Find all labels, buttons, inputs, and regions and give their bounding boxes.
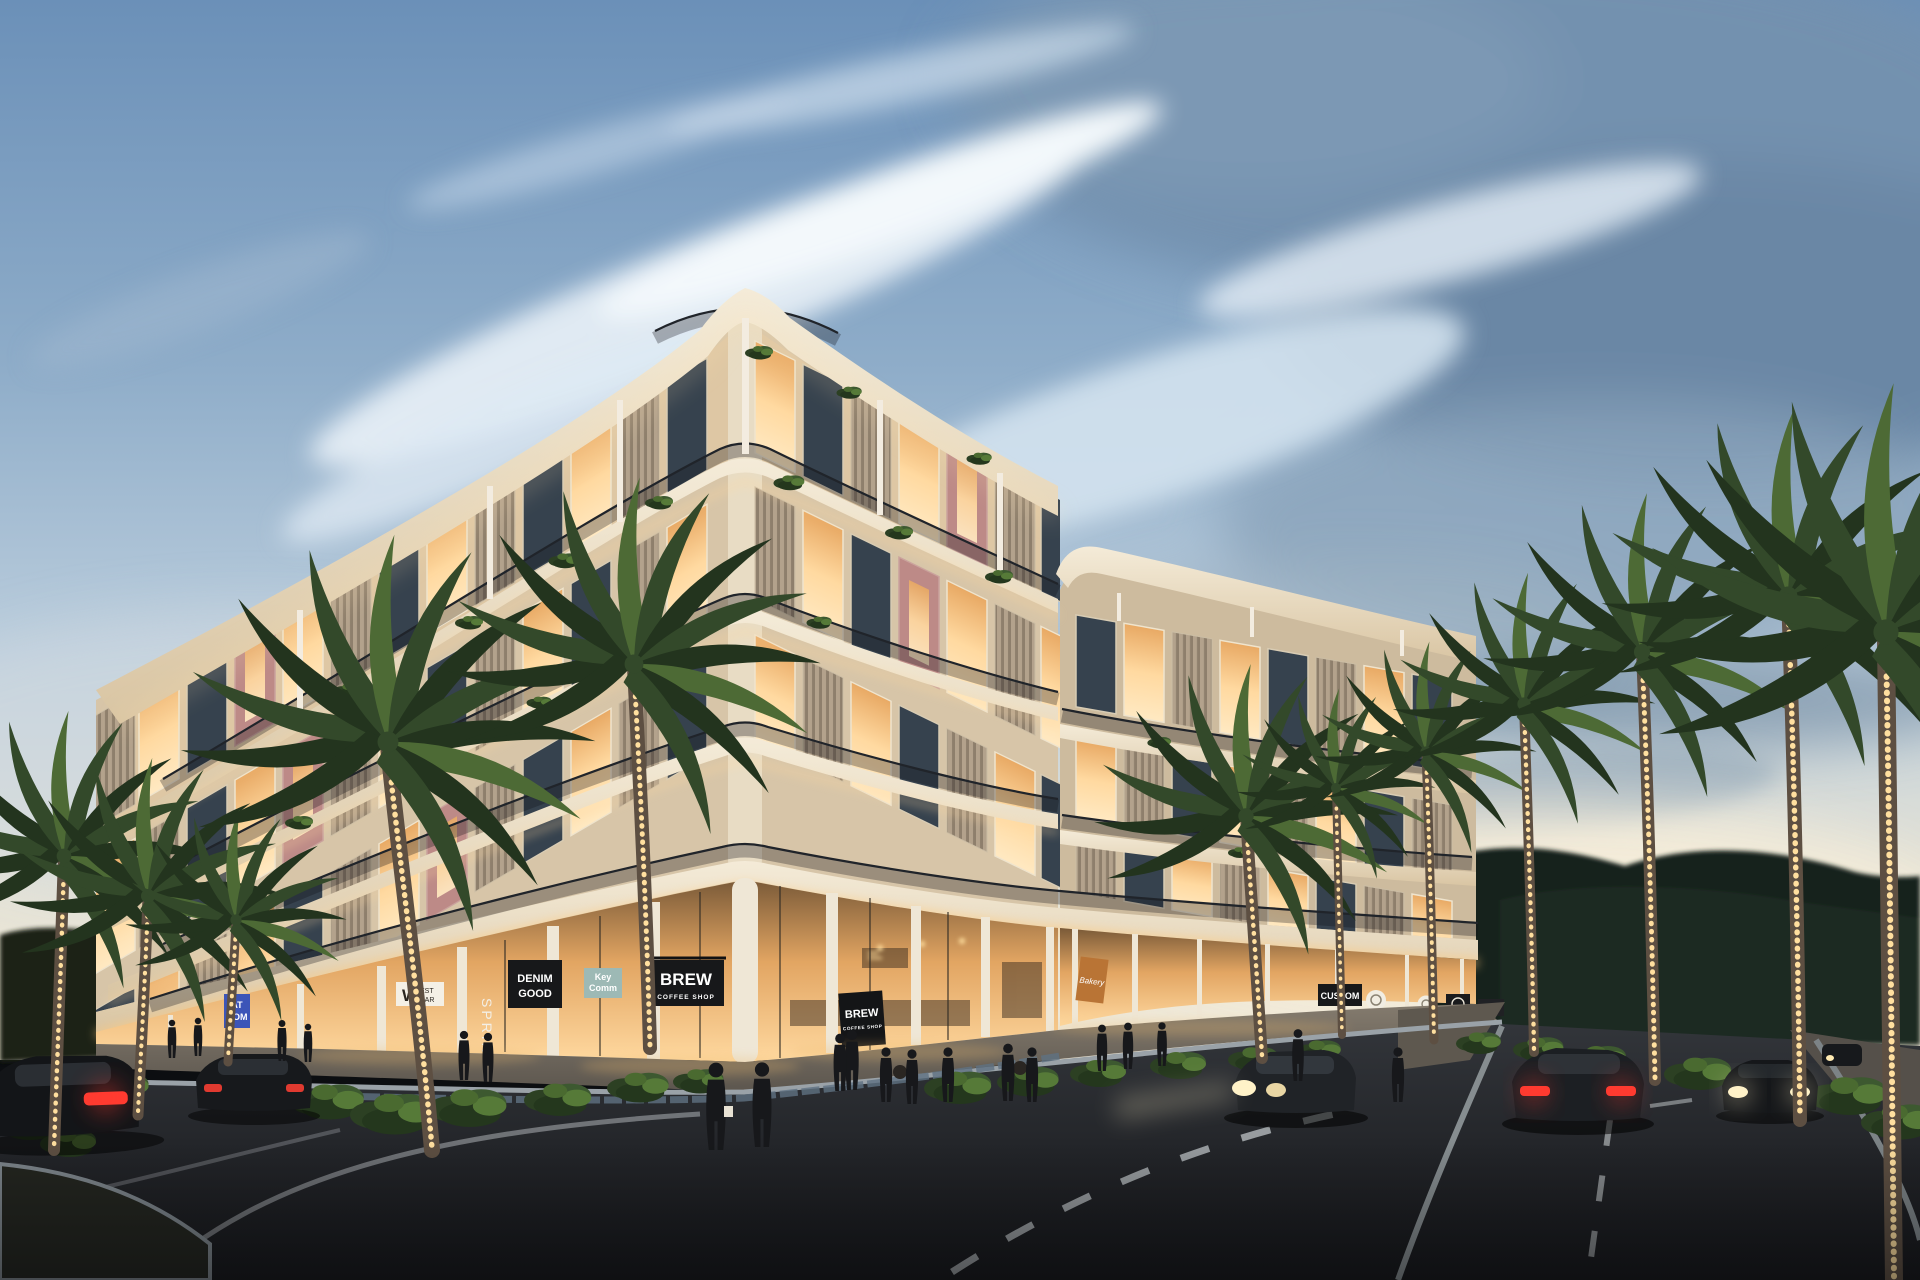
scene-architectural-rendering: AT COM W EST BAR SPRING DENIM GOOD Key C… (0, 0, 1920, 1280)
svg-text:DENIM: DENIM (517, 973, 552, 985)
sign-brew-main: BREW COFFEE SHOP (646, 958, 726, 1006)
sign-brew-corner: BREW COFFEE SHOP (838, 991, 886, 1048)
svg-text:GOOD: GOOD (518, 988, 552, 1000)
sign-bakery: Bakery (1075, 956, 1108, 1003)
bottom-vignette (0, 1140, 1920, 1280)
sign-denim: DENIM GOOD (508, 960, 562, 1008)
svg-text:Comm: Comm (589, 983, 617, 993)
car-distant (1822, 1044, 1862, 1066)
svg-text:BREW: BREW (660, 970, 713, 989)
sign-key-comm: Key Comm (584, 968, 622, 998)
svg-text:COFFEE SHOP: COFFEE SHOP (657, 994, 715, 1001)
svg-text:BREW: BREW (845, 1007, 880, 1021)
svg-text:Key: Key (595, 972, 612, 982)
